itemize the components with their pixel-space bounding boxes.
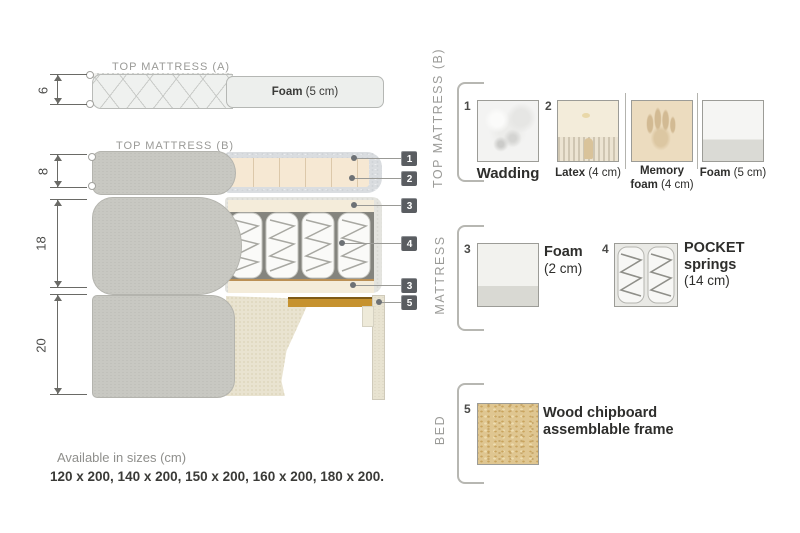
callout-line-3b <box>353 285 401 286</box>
dim-tick <box>50 187 87 188</box>
springs-svg <box>228 212 374 279</box>
dim-tick <box>50 287 87 288</box>
legend-divider <box>625 93 626 169</box>
button-dot <box>86 71 94 79</box>
callout-box-3b: 3 <box>401 278 417 293</box>
callout-box-4: 4 <box>401 236 417 251</box>
top-mattress-a-foam: Foam (5 cm) <box>226 76 384 108</box>
wood-chipboard-image <box>477 403 539 465</box>
top-mattress-b-foam-blocks <box>228 158 369 187</box>
pocket-springs-label: POCKET springs (14 cm) <box>684 240 744 290</box>
dim-arrow-down <box>54 281 62 287</box>
pocket-springs-cross-section <box>228 212 374 279</box>
dim-line <box>57 200 58 287</box>
dim-arrow-up <box>54 155 62 161</box>
dim-tick <box>50 104 87 105</box>
dim-arrow-up <box>54 200 62 206</box>
callout-line-4 <box>342 243 401 244</box>
dim-line <box>57 295 58 394</box>
foam-a-label: Foam (5 cm) <box>272 86 338 98</box>
legend-num-1: 1 <box>464 99 471 113</box>
dimension-value-18: 18 <box>34 224 49 264</box>
foam-2cm-label: Foam (2 cm) <box>544 244 583 277</box>
callout-dot-2 <box>349 175 355 181</box>
dim-arrow-down <box>54 98 62 104</box>
legend-section-title-top-b: TOP MATTRESS (B) <box>431 68 445 188</box>
wadding-image <box>477 100 539 162</box>
dimension-top-a <box>50 74 87 105</box>
dim-arrow-down <box>54 388 62 394</box>
top-mattress-a-quilt <box>92 74 233 109</box>
callout-line-3a <box>354 205 401 206</box>
button-dot <box>86 100 94 108</box>
callout-dot-4 <box>339 240 345 246</box>
available-sizes-title: Available in sizes (cm) <box>57 450 186 465</box>
legend-num-2: 2 <box>545 99 552 113</box>
callout-dot-3b <box>350 282 356 288</box>
button-dot <box>88 153 96 161</box>
dimension-bed <box>50 294 87 395</box>
dim-arrow-up <box>54 75 62 81</box>
callout-line-5 <box>379 302 401 303</box>
dimension-top-b <box>50 154 87 188</box>
callout-dot-5 <box>376 299 382 305</box>
pocket-springs-image <box>614 243 678 307</box>
dimension-value-20: 20 <box>34 326 49 366</box>
wadding-label: Wadding <box>462 165 554 183</box>
bed-frame-block <box>362 306 374 327</box>
mattress-diagram-page: TOP MATTRESS (A) Foam (5 cm) 6 TOP MATTR… <box>0 0 800 533</box>
dim-tick <box>50 394 87 395</box>
callout-line-1 <box>354 158 401 159</box>
available-sizes-list: 120 x 200, 140 x 200, 150 x 200, 160 x 2… <box>50 469 384 484</box>
memory-foam-label: Memory foam (4 cm) <box>621 165 703 193</box>
top-mattress-b-cover <box>92 151 236 195</box>
dimension-value-6: 6 <box>36 71 51 111</box>
bed-cover <box>92 295 235 398</box>
legend-num-3: 3 <box>464 242 471 256</box>
latex-notch <box>584 138 593 159</box>
bed-fabric-drape <box>226 296 310 396</box>
dim-arrow-down <box>54 181 62 187</box>
callout-dot-1 <box>351 155 357 161</box>
callout-dot-3a <box>351 202 357 208</box>
legend-section-title-bed: BED <box>433 370 447 490</box>
dimension-mattress <box>50 199 87 288</box>
mattress-cover <box>92 197 242 295</box>
callout-box-1: 1 <box>401 151 417 166</box>
legend-num-5: 5 <box>464 402 471 416</box>
foam-2cm-image <box>477 243 539 307</box>
latex-fleck <box>582 113 590 118</box>
latex-label: Latex (4 cm) <box>547 167 629 181</box>
legend-divider <box>697 93 698 169</box>
top-mattress-a-title: TOP MATTRESS (A) <box>112 61 230 73</box>
callout-line-2 <box>352 178 401 179</box>
callout-box-3a: 3 <box>401 198 417 213</box>
foam-5cm-image <box>702 100 764 162</box>
pocket-springs-svg <box>615 244 677 306</box>
memory-foam-image <box>631 100 693 162</box>
dimension-value-8: 8 <box>36 152 51 192</box>
dim-arrow-up <box>54 295 62 301</box>
legend-num-4: 4 <box>602 242 609 256</box>
foam-5cm-label: Foam (5 cm) <box>692 167 774 181</box>
button-dot <box>88 182 96 190</box>
callout-box-5: 5 <box>401 295 417 310</box>
wood-chipboard-label: Wood chipboard assemblable frame <box>543 405 674 438</box>
callout-box-2: 2 <box>401 171 417 186</box>
legend-section-title-mattress: MATTRESS <box>433 215 447 335</box>
latex-image <box>557 100 619 162</box>
